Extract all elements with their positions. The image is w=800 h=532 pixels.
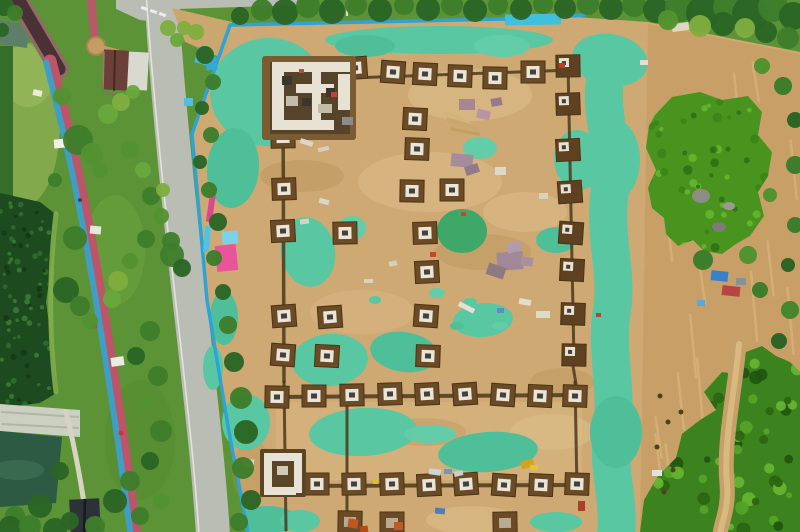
tree xyxy=(51,462,69,480)
tree xyxy=(28,494,52,518)
pile-cap-footing xyxy=(555,138,580,161)
pile-cap-footing xyxy=(558,221,583,245)
pile-cap-footing xyxy=(380,473,405,496)
track-branch xyxy=(91,0,95,42)
pile-cap-footing xyxy=(493,512,517,532)
pile-cap-footing xyxy=(413,222,438,245)
pile-cap-footing xyxy=(440,179,464,201)
tree xyxy=(141,452,159,470)
bench xyxy=(110,356,124,367)
tree xyxy=(230,513,248,531)
tree xyxy=(755,21,777,43)
pile-cap-footing xyxy=(561,303,586,326)
tree xyxy=(156,183,170,197)
tree xyxy=(215,284,231,300)
tree xyxy=(63,226,87,250)
tree xyxy=(231,7,249,25)
blue-truck xyxy=(711,270,729,282)
tree xyxy=(203,127,219,143)
tree xyxy=(711,12,735,36)
pile-cap-footing xyxy=(333,222,357,244)
pile-cap-footing xyxy=(452,382,477,406)
tree xyxy=(81,143,103,165)
tree xyxy=(92,162,108,178)
tree xyxy=(150,420,172,442)
pile-cap-footing xyxy=(342,473,366,495)
tree xyxy=(126,85,140,99)
tree xyxy=(160,20,176,36)
tree xyxy=(70,296,90,316)
tree xyxy=(153,493,169,509)
tree xyxy=(232,457,254,479)
aerial-construction-photo xyxy=(0,0,800,532)
tree xyxy=(131,507,149,525)
tree xyxy=(170,33,184,47)
pile-cap-footing xyxy=(270,343,295,367)
pile-cap-footing xyxy=(527,384,552,407)
pile-cap-footing xyxy=(490,383,515,407)
tree xyxy=(7,5,23,21)
tree xyxy=(195,101,209,115)
tree xyxy=(272,0,298,25)
pile-cap-footing xyxy=(563,385,588,408)
tree xyxy=(206,250,222,266)
tree xyxy=(209,213,227,231)
tree xyxy=(658,10,678,30)
tree xyxy=(121,141,139,159)
pile-cap-footing xyxy=(314,344,339,367)
tree xyxy=(82,313,98,329)
tree xyxy=(201,182,217,198)
pedestrian xyxy=(119,431,124,436)
pile-cap-footing xyxy=(402,107,427,130)
pile-cap-footing xyxy=(556,93,581,116)
pile-cap-footing xyxy=(378,383,403,406)
pile-cap-footing xyxy=(317,305,342,329)
tree xyxy=(53,87,71,105)
pile-cap-footing xyxy=(271,304,296,328)
tree xyxy=(137,230,155,248)
tree xyxy=(135,162,151,178)
pile-cap-footing xyxy=(400,180,424,202)
tree xyxy=(48,173,62,187)
tree xyxy=(205,74,221,90)
pile-cap-footing xyxy=(414,382,439,405)
tree xyxy=(173,259,191,277)
tree xyxy=(108,271,128,291)
cyan-tarp xyxy=(222,230,239,244)
tree xyxy=(103,489,127,513)
pile-cap-footing xyxy=(448,65,473,88)
red-container xyxy=(722,285,741,297)
tree xyxy=(103,290,121,308)
hedge-strip xyxy=(0,46,13,196)
pile-cap-footing xyxy=(270,219,295,242)
tree xyxy=(735,18,755,38)
pile-cap-footing xyxy=(483,67,507,89)
pile-cap-footing xyxy=(559,258,584,281)
tree xyxy=(251,0,273,21)
pile-cap-footing xyxy=(413,304,438,328)
tree xyxy=(120,471,140,491)
tree xyxy=(122,253,138,269)
pile-cap-footing xyxy=(416,345,441,368)
pile-cap-footing xyxy=(557,180,582,204)
pile-cap-footing xyxy=(416,473,441,496)
tree xyxy=(196,46,214,64)
tree xyxy=(153,208,169,224)
bench xyxy=(90,226,102,235)
tree xyxy=(230,387,252,409)
pile-cap-footing xyxy=(528,473,553,496)
pile-cap-footing xyxy=(305,473,329,495)
pile-cap-footing xyxy=(265,386,289,408)
tree xyxy=(140,393,156,409)
pile-cap-footing xyxy=(414,260,439,283)
tree xyxy=(140,321,160,341)
tree xyxy=(193,155,207,169)
pile-cap-footing xyxy=(521,61,545,83)
tree xyxy=(224,352,244,372)
pile-cap-footing xyxy=(491,473,516,497)
pile-cap-footing xyxy=(272,178,297,201)
tree xyxy=(234,420,258,444)
aerial-photo-canvas xyxy=(0,0,800,532)
tree xyxy=(177,21,191,35)
pile-cap-footing xyxy=(562,344,586,366)
tree xyxy=(219,316,237,334)
concrete-works-main xyxy=(262,56,356,152)
pile-cap-footing xyxy=(380,60,405,84)
tree xyxy=(689,15,711,37)
pile-cap-footing xyxy=(412,62,437,85)
tree xyxy=(127,347,145,365)
pile-cap-footing xyxy=(565,473,590,496)
pedestrian xyxy=(78,198,82,202)
pile-cap-footing xyxy=(405,138,430,161)
tree xyxy=(148,366,168,386)
tree xyxy=(241,490,261,510)
pile-cap-footing xyxy=(302,385,326,407)
pile-cap-footing xyxy=(340,384,364,406)
tree xyxy=(777,27,799,49)
